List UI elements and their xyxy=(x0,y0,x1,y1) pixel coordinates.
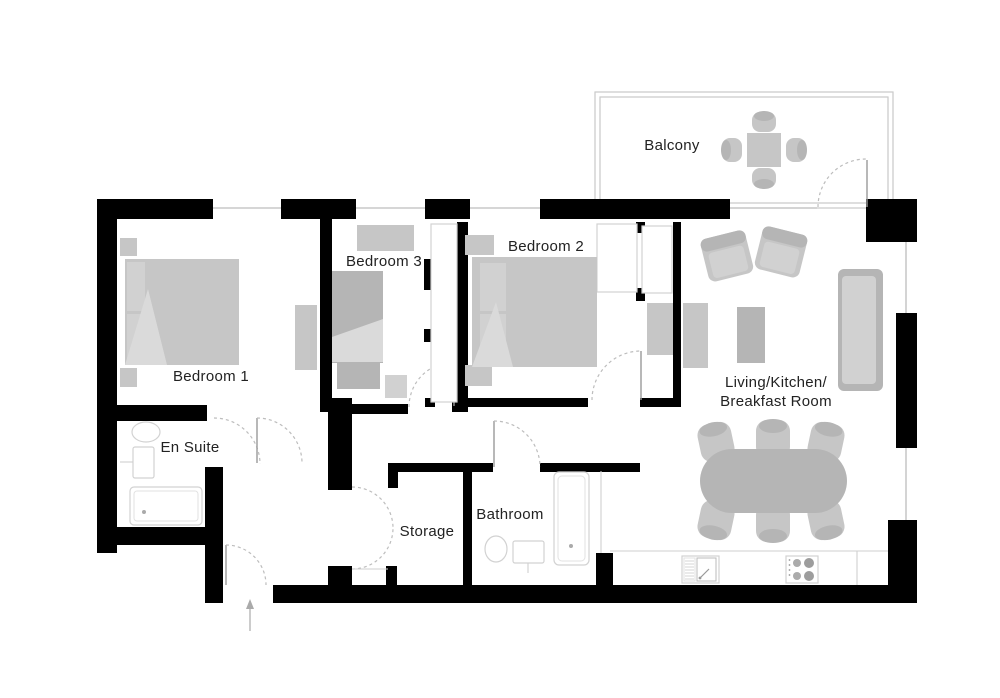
bedside-table xyxy=(120,238,137,256)
room-label-storage: Storage xyxy=(400,523,455,540)
entrance-arrow xyxy=(246,599,254,631)
room-label-bathroom: Bathroom xyxy=(476,506,543,523)
room-label-bedroom3: Bedroom 3 xyxy=(346,253,422,270)
pillow xyxy=(480,263,506,311)
burner xyxy=(793,559,801,567)
hob xyxy=(786,556,818,583)
bedside-table xyxy=(465,235,494,255)
closet-bedroom2-right xyxy=(642,226,672,293)
table xyxy=(747,133,781,167)
dining-table xyxy=(700,449,847,513)
balcony-furniture xyxy=(721,111,807,189)
bedside-table xyxy=(120,368,137,387)
coffee-table xyxy=(737,307,765,363)
wardrobe xyxy=(295,305,317,370)
room-label-living-line2: Breakfast Room xyxy=(720,393,832,410)
wardrobe xyxy=(357,225,414,251)
pillow xyxy=(127,262,145,311)
sideboard xyxy=(683,303,708,368)
toilet xyxy=(485,536,507,562)
bedroom1-furniture xyxy=(120,238,317,387)
shower-tray xyxy=(130,487,202,525)
door-entrance xyxy=(226,545,266,585)
room-label-balcony: Balcony xyxy=(644,137,700,154)
balcony-table-set xyxy=(721,111,807,189)
burner xyxy=(804,558,814,568)
dresser xyxy=(337,363,380,389)
toilet xyxy=(132,422,160,442)
room-label-bedroom2: Bedroom 2 xyxy=(508,238,584,255)
kitchen-sink xyxy=(682,556,719,583)
sink xyxy=(120,447,154,478)
burner xyxy=(804,571,814,581)
drain xyxy=(569,544,573,548)
door-bedroom2 xyxy=(592,351,641,400)
sofa xyxy=(838,269,883,391)
wardrobe xyxy=(647,303,673,355)
burner xyxy=(793,572,801,580)
single-bed xyxy=(332,271,383,363)
double-bed xyxy=(472,257,597,367)
door-bathroom xyxy=(494,421,540,467)
closet-between-bedrooms xyxy=(431,224,457,402)
door-balcony xyxy=(818,159,867,207)
floor-plan: Balcony Bedroom 1 Bedroom 3 Bedroom 2 En… xyxy=(0,0,1000,698)
door-storage-double xyxy=(352,487,393,569)
ensuite-fixtures xyxy=(120,422,202,525)
drain xyxy=(142,510,146,514)
door-ensuite xyxy=(214,418,260,464)
armchair xyxy=(753,225,808,279)
bedroom3-furniture xyxy=(332,225,414,398)
room-label-living-line1: Living/Kitchen/ xyxy=(725,374,828,391)
bedside-table xyxy=(465,365,492,386)
floor-plan-page: Balcony Bedroom 1 Bedroom 3 Bedroom 2 En… xyxy=(0,0,1000,698)
armchair xyxy=(699,229,754,283)
double-bed xyxy=(125,259,239,365)
room-label-ensuite: En Suite xyxy=(160,439,219,456)
room-label-bedroom1: Bedroom 1 xyxy=(173,368,249,385)
bathtub xyxy=(554,472,589,565)
bedside-table xyxy=(385,375,407,398)
kitchen xyxy=(610,551,888,585)
sink xyxy=(513,541,544,573)
balcony-outline xyxy=(595,92,893,208)
door-bedroom1 xyxy=(257,418,302,463)
closet-bedroom2-left xyxy=(597,224,637,292)
